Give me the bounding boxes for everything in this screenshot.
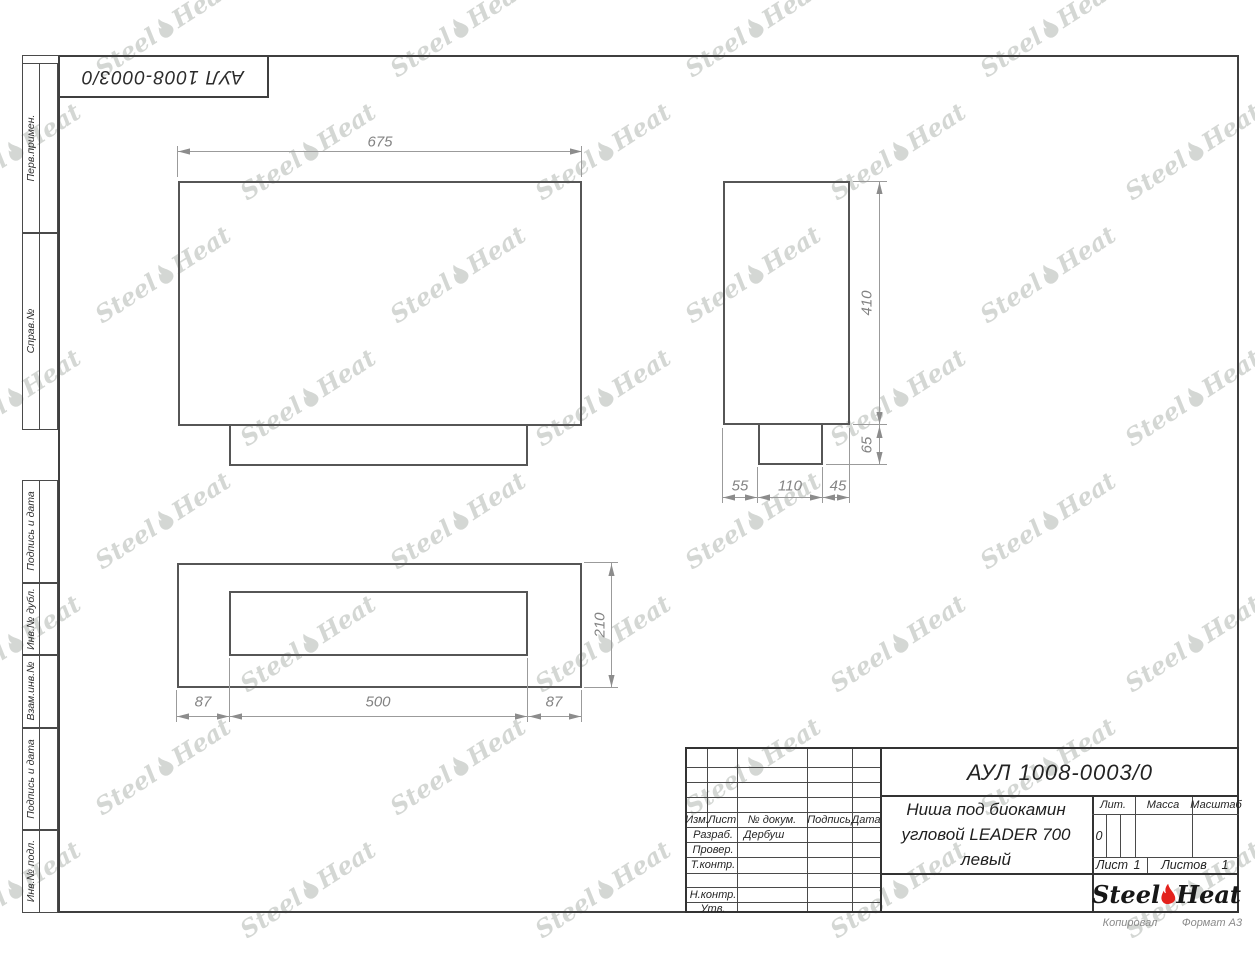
- dim-label-500: 500: [365, 694, 390, 711]
- margin-label: Инв.№ дубл.: [25, 588, 37, 650]
- extension-line: [581, 690, 582, 722]
- tb-row-nkontr: Н.контр.: [690, 889, 737, 901]
- divider-line: [687, 857, 880, 858]
- tb-product-title-line1: Ниша под биокамин: [906, 797, 1065, 822]
- margin-label: Справ.№: [25, 309, 37, 354]
- tb-lit-label: Лит.: [1100, 799, 1126, 811]
- flame-icon: [1160, 879, 1176, 909]
- dim-label-210: 210: [592, 612, 609, 637]
- margin-label: Перв.примен.: [25, 115, 37, 182]
- tb-scale-label: Масштаб: [1190, 799, 1241, 811]
- divider-line: [687, 767, 880, 768]
- tb-razrab-name: Дербуш: [744, 829, 785, 841]
- divider-line: [1135, 795, 1136, 857]
- tb-sheets-label: Листов: [1161, 858, 1207, 872]
- extension-line: [229, 658, 230, 722]
- dimension-line-210: [611, 563, 612, 688]
- divider-line: [1092, 814, 1239, 815]
- divider-line: [39, 234, 40, 429]
- extension-line: [722, 428, 723, 503]
- divider-line: [687, 782, 880, 783]
- tb-mass-label: Масса: [1147, 799, 1180, 811]
- top-stamp-box: АУЛ 1008-0003/0: [58, 55, 269, 98]
- divider-line: [1120, 814, 1121, 857]
- divider-line: [687, 873, 880, 874]
- logo-word-steel: Steel: [1092, 880, 1160, 909]
- tb-header-docnum: № докум.: [748, 814, 796, 826]
- front-view-base: [229, 426, 528, 466]
- extension-line: [853, 424, 887, 425]
- divider-line: [39, 831, 40, 912]
- margin-label: Подпись и дата: [25, 491, 37, 570]
- divider-line: [687, 887, 880, 888]
- dim-label-675: 675: [367, 134, 392, 151]
- divider-line: [39, 729, 40, 829]
- tb-row-utv: Утв.: [701, 903, 726, 915]
- tb-doc-number: АУЛ 1008-0003/0: [967, 760, 1153, 786]
- plan-view-opening: [229, 591, 528, 656]
- extension-line: [826, 464, 887, 465]
- tb-row-tkontr: Т.контр.: [691, 859, 735, 871]
- divider-line: [687, 797, 880, 798]
- drawing-sheet: SteelHeatSteelHeatSteelHeatSteelHeatStee…: [0, 0, 1255, 970]
- divider-line: [687, 812, 880, 813]
- extension-line: [849, 428, 850, 503]
- tb-product-title-line3: левый: [961, 847, 1011, 872]
- tb-sheet-value: 1: [1134, 858, 1141, 872]
- tb-header-list: Лист: [708, 814, 736, 826]
- extension-line: [176, 690, 177, 722]
- dim-label-110: 110: [778, 478, 802, 495]
- tb-header-data: Дата: [851, 814, 880, 826]
- top-stamp-doc-number: АУЛ 1008-0003/0: [81, 65, 244, 87]
- dim-label-55: 55: [732, 478, 749, 495]
- dimension-line-410: [879, 181, 880, 425]
- divider-line: [39, 584, 40, 654]
- margin-label: Подпись и дата: [25, 739, 37, 818]
- tb-product-title-line2: угловой LEADER 700: [902, 822, 1071, 847]
- side-view-outline: [723, 181, 850, 425]
- format-note: Формат А3: [1182, 917, 1242, 929]
- margin-label: Взам.инв.№: [25, 661, 37, 720]
- extension-line: [527, 658, 528, 722]
- dim-label-410: 410: [859, 290, 876, 315]
- tb-product-title: Ниша под биокамин угловой LEADER 700 лев…: [880, 795, 1092, 873]
- logo-word-heat: Heat: [1176, 880, 1241, 909]
- frame-top-extension: [22, 55, 59, 56]
- dim-label-87-left: 87: [195, 694, 212, 711]
- dim-label-65: 65: [859, 437, 876, 454]
- tb-header-izm: Изм.: [685, 814, 708, 826]
- tb-row-prover: Провер.: [693, 844, 734, 856]
- dim-label-87-right: 87: [546, 694, 563, 711]
- divider-line: [39, 64, 40, 232]
- extension-line: [584, 562, 618, 563]
- extension-line: [584, 687, 618, 688]
- front-view-outline: [178, 181, 582, 426]
- margin-label: Инв.№ подл.: [25, 840, 37, 902]
- divider-line: [39, 656, 40, 727]
- divider-line: [1106, 814, 1107, 857]
- dim-label-45: 45: [830, 478, 847, 495]
- tb-sheet-label: Лист: [1096, 858, 1128, 872]
- steel-heat-logo: Steel Heat: [1092, 873, 1241, 915]
- extension-line: [853, 181, 887, 182]
- divider-line: [1147, 857, 1148, 873]
- tb-header-podpis: Подпись: [807, 814, 851, 826]
- divider-line: [39, 481, 40, 582]
- tb-lit-value: 0: [1096, 829, 1103, 843]
- tb-sheets-value: 1: [1222, 858, 1229, 872]
- tb-row-razrab: Разраб.: [693, 829, 733, 841]
- side-view-base: [758, 425, 823, 465]
- dimension-line-675: [178, 151, 582, 152]
- divider-line: [687, 827, 880, 828]
- title-block: Изм. Лист № докум. Подпись Дата Разраб. …: [685, 747, 1239, 913]
- copied-note: Копировал: [1103, 917, 1158, 929]
- divider-line: [687, 842, 880, 843]
